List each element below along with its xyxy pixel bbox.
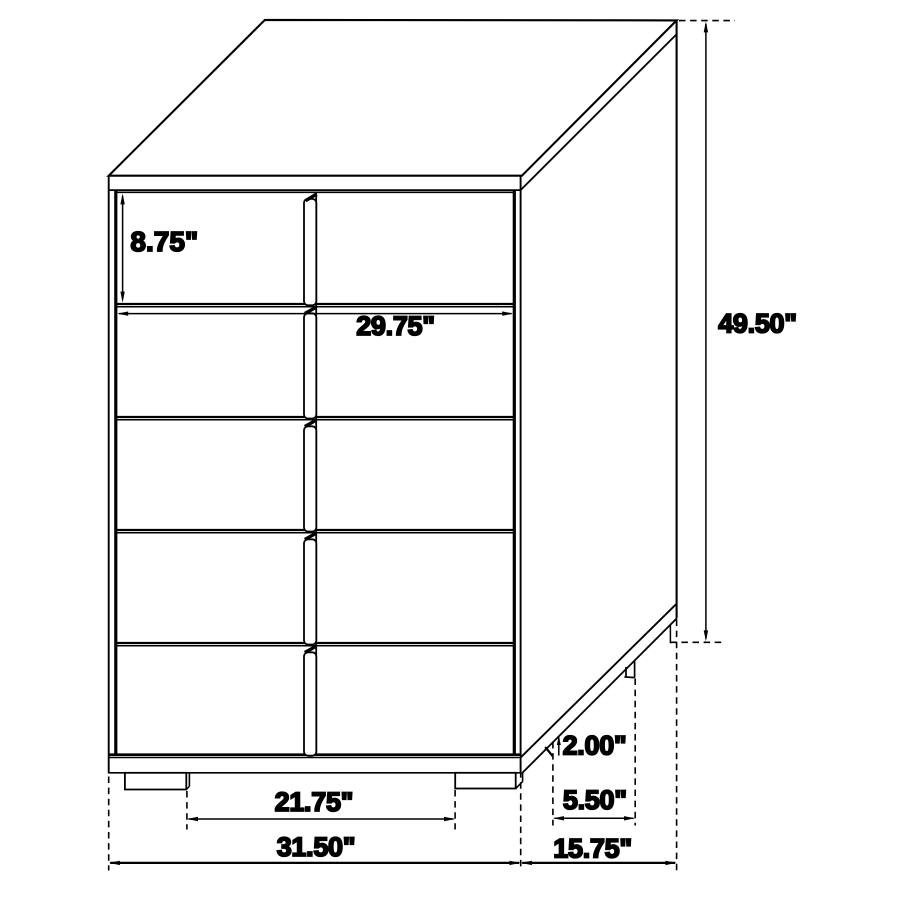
svg-text:49.50": 49.50" — [718, 308, 797, 338]
svg-text:15.75": 15.75" — [553, 833, 632, 863]
svg-text:21.75": 21.75" — [275, 787, 354, 817]
svg-text:29.75": 29.75" — [356, 311, 435, 341]
svg-text:5.50": 5.50" — [563, 785, 627, 815]
svg-text:31.50": 31.50" — [277, 832, 356, 862]
svg-text:8.75": 8.75" — [130, 226, 198, 257]
svg-text:2.00": 2.00" — [563, 730, 627, 760]
